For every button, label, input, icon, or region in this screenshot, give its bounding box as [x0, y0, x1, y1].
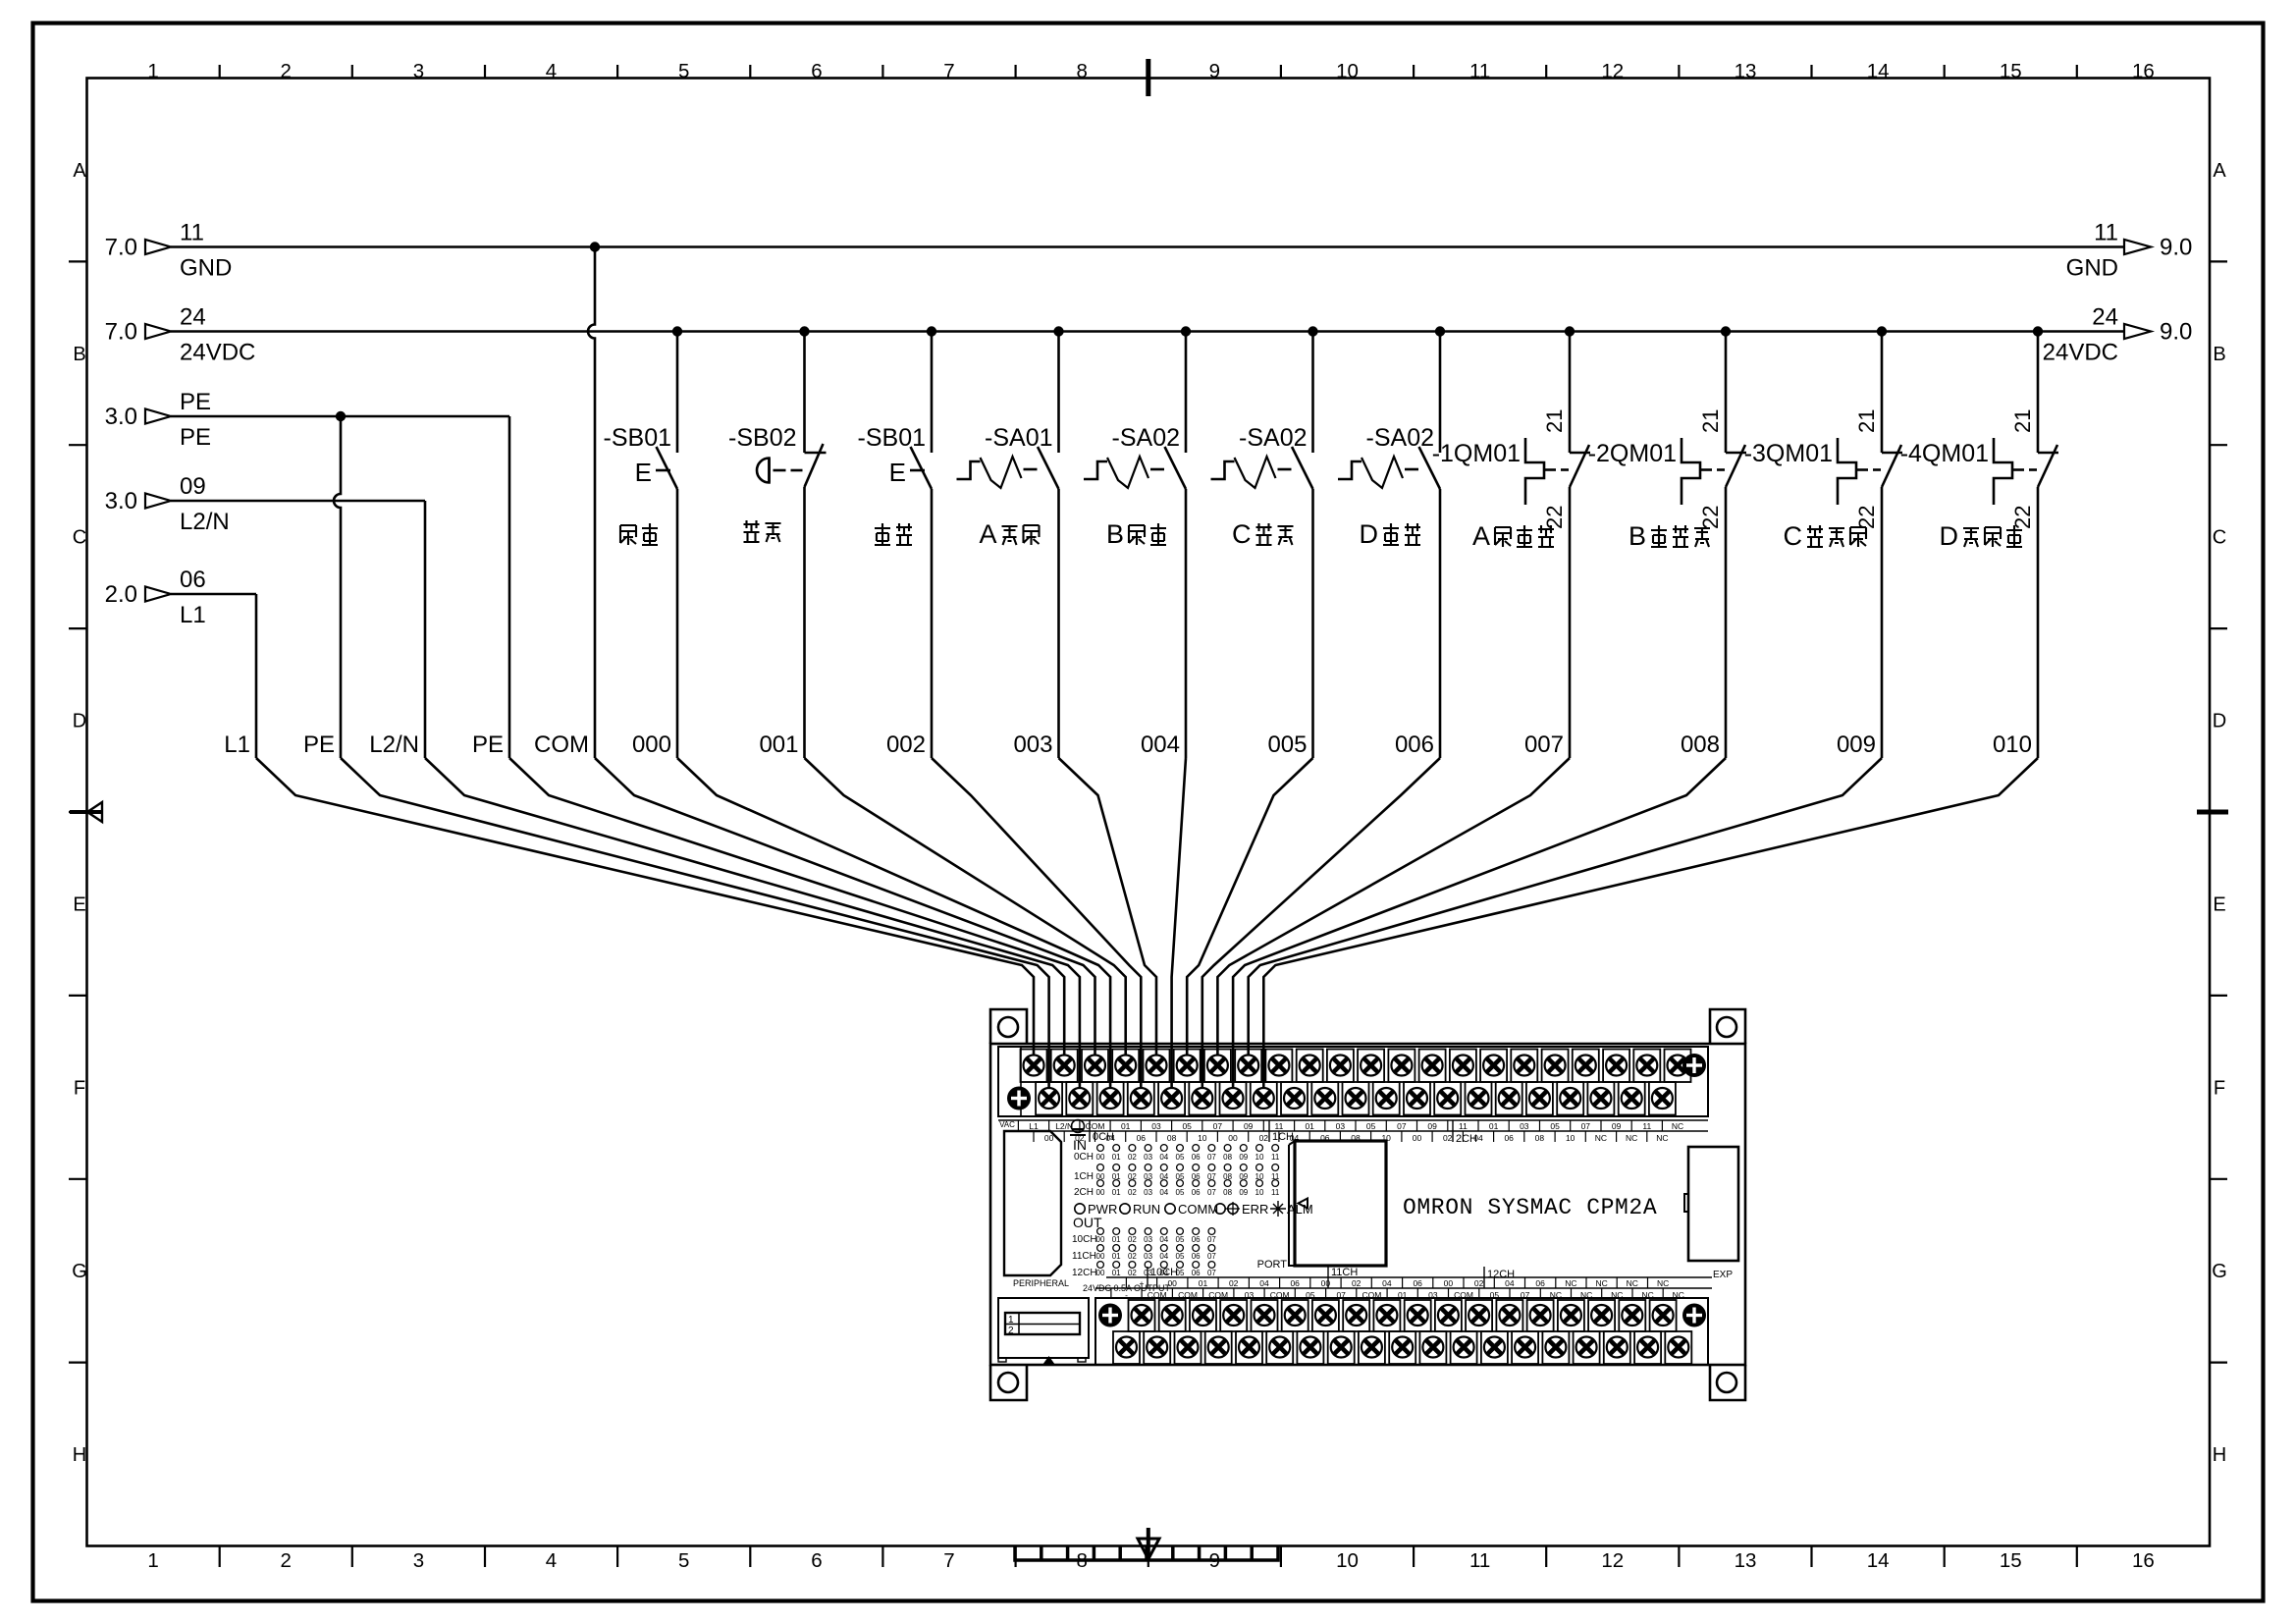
svg-text:11: 11 [1642, 1121, 1651, 1131]
svg-text:09: 09 [1239, 1188, 1248, 1197]
svg-text:00: 00 [1444, 1278, 1454, 1288]
svg-text:B: B [1106, 519, 1124, 549]
svg-text:OUT: OUT [1073, 1215, 1102, 1230]
svg-text:07: 07 [1397, 1121, 1407, 1131]
svg-text:PE: PE [180, 389, 211, 415]
svg-text:00: 00 [1096, 1269, 1105, 1277]
svg-text:11: 11 [1271, 1153, 1280, 1162]
svg-text:10: 10 [1255, 1188, 1264, 1197]
svg-text:11: 11 [1469, 60, 1490, 82]
svg-text:08: 08 [1535, 1133, 1545, 1143]
svg-text:NC: NC [1656, 1133, 1668, 1143]
svg-text:10: 10 [1336, 1549, 1359, 1572]
svg-text:5: 5 [678, 1549, 689, 1572]
svg-text:02: 02 [1128, 1252, 1137, 1261]
svg-text:H: H [2213, 1444, 2226, 1466]
svg-text:12CH: 12CH [1072, 1268, 1097, 1278]
svg-text:21: 21 [1854, 409, 1879, 433]
svg-text:03: 03 [1520, 1121, 1529, 1131]
svg-text:05: 05 [1176, 1188, 1185, 1197]
svg-text:-SB01: -SB01 [604, 424, 671, 452]
svg-text:PE: PE [180, 424, 211, 451]
svg-text:F: F [74, 1077, 85, 1099]
svg-text:10: 10 [1198, 1133, 1207, 1143]
svg-text:06: 06 [180, 567, 206, 593]
svg-text:-SB01: -SB01 [858, 424, 926, 452]
svg-text:02: 02 [1259, 1133, 1269, 1143]
svg-text:00: 00 [1167, 1278, 1177, 1288]
svg-text:04: 04 [1259, 1278, 1269, 1288]
svg-text:-SB02: -SB02 [728, 424, 796, 452]
svg-text:03: 03 [1144, 1188, 1152, 1197]
svg-text:11: 11 [1274, 1121, 1283, 1131]
svg-text:1: 1 [147, 1549, 158, 1572]
svg-text:01: 01 [1112, 1188, 1121, 1197]
svg-text:00: 00 [1096, 1252, 1105, 1261]
svg-text:COM: COM [1086, 1121, 1105, 1131]
svg-text:12: 12 [1601, 60, 1624, 82]
svg-text:PE: PE [303, 731, 335, 758]
svg-text:06: 06 [1504, 1133, 1514, 1143]
svg-text:00: 00 [1096, 1188, 1105, 1197]
svg-text:D: D [1360, 519, 1379, 549]
svg-text:08: 08 [1223, 1188, 1232, 1197]
svg-text:03: 03 [1144, 1235, 1152, 1244]
svg-text:7.0: 7.0 [105, 235, 137, 261]
svg-text:12: 12 [1601, 1549, 1624, 1572]
svg-text:01: 01 [1112, 1252, 1121, 1261]
svg-text:07: 07 [1207, 1252, 1216, 1261]
svg-text:COM: COM [1178, 1290, 1198, 1300]
svg-text:NC: NC [1611, 1290, 1623, 1300]
svg-text:-SA01: -SA01 [985, 424, 1052, 452]
svg-text:E: E [73, 893, 85, 915]
svg-text:010: 010 [1993, 731, 2032, 758]
svg-text:05: 05 [1182, 1121, 1192, 1131]
svg-text:D: D [73, 711, 86, 732]
svg-text:E: E [635, 458, 652, 487]
svg-text:02: 02 [1229, 1278, 1239, 1288]
svg-text:11CH: 11CH [1331, 1267, 1358, 1278]
svg-text:5: 5 [678, 60, 689, 82]
svg-text:E: E [889, 458, 906, 487]
svg-text:VAC: VAC [999, 1120, 1015, 1129]
svg-text:G: G [2212, 1261, 2227, 1282]
svg-text:000: 000 [632, 731, 671, 758]
svg-text:-SA02: -SA02 [1366, 424, 1434, 452]
svg-text:A: A [2213, 160, 2226, 182]
svg-text:06: 06 [1192, 1269, 1201, 1277]
svg-text:RUN: RUN [1133, 1202, 1160, 1217]
svg-text:10CH: 10CH [1150, 1267, 1178, 1278]
svg-text:B: B [1629, 521, 1646, 551]
svg-text:06: 06 [1192, 1252, 1201, 1261]
svg-text:09: 09 [180, 473, 206, 500]
svg-text:NC: NC [1641, 1290, 1653, 1300]
svg-text:07: 07 [1207, 1235, 1216, 1244]
svg-text:B: B [73, 344, 85, 365]
svg-text:05: 05 [1176, 1252, 1185, 1261]
svg-text:GND: GND [180, 255, 232, 282]
svg-text:24: 24 [180, 304, 206, 331]
svg-text:24VDC: 24VDC [180, 340, 255, 366]
svg-text:03: 03 [1144, 1252, 1152, 1261]
svg-text:07: 07 [1207, 1269, 1216, 1277]
svg-text:07: 07 [1521, 1290, 1530, 1300]
svg-text:06: 06 [1137, 1133, 1147, 1143]
svg-text:IN: IN [1073, 1137, 1087, 1153]
svg-text:2CH: 2CH [1074, 1187, 1094, 1198]
svg-text:09: 09 [1244, 1121, 1254, 1131]
svg-text:007: 007 [1524, 731, 1564, 758]
svg-text:9: 9 [1209, 60, 1220, 82]
svg-text:OMRON SYSMAC CPM2A: OMRON SYSMAC CPM2A [1403, 1195, 1657, 1220]
svg-text:02: 02 [1352, 1278, 1362, 1288]
svg-text:COM: COM [1454, 1290, 1473, 1300]
svg-text:NC: NC [1626, 1133, 1637, 1143]
svg-text:0CH: 0CH [1093, 1131, 1114, 1143]
svg-text:02: 02 [1128, 1269, 1137, 1277]
svg-text:00: 00 [1321, 1278, 1331, 1288]
svg-text:21: 21 [1542, 409, 1567, 433]
svg-text:-1QM01: -1QM01 [1432, 440, 1521, 467]
svg-text:12CH: 12CH [1487, 1269, 1515, 1280]
svg-text:7: 7 [943, 60, 954, 82]
svg-text:07: 07 [1207, 1188, 1216, 1197]
svg-text:NC: NC [1565, 1278, 1576, 1288]
svg-text:4: 4 [546, 1549, 557, 1572]
svg-text:06: 06 [1192, 1235, 1201, 1244]
svg-text:NC: NC [1550, 1290, 1562, 1300]
svg-text:11: 11 [1459, 1121, 1468, 1131]
svg-text:22: 22 [1542, 506, 1567, 529]
svg-text:-SA02: -SA02 [1112, 424, 1180, 452]
svg-text:005: 005 [1267, 731, 1307, 758]
svg-text:2: 2 [1008, 1326, 1014, 1336]
svg-text:1: 1 [147, 60, 158, 82]
svg-text:L2/N: L2/N [1055, 1121, 1073, 1131]
svg-text:C: C [2213, 527, 2226, 549]
svg-text:03: 03 [1151, 1121, 1161, 1131]
svg-text:14: 14 [1867, 1549, 1890, 1572]
svg-text:COM: COM [1362, 1290, 1381, 1300]
svg-text:NC: NC [1672, 1121, 1683, 1131]
svg-text:ERR: ERR [1242, 1202, 1268, 1217]
svg-text:04: 04 [1159, 1188, 1168, 1197]
svg-text:8: 8 [1076, 60, 1087, 82]
svg-text:PORT: PORT [1257, 1259, 1288, 1271]
svg-text:09: 09 [1239, 1153, 1248, 1162]
svg-text:2: 2 [280, 60, 291, 82]
svg-text:05: 05 [1176, 1235, 1185, 1244]
svg-text:E: E [2213, 893, 2225, 915]
svg-text:21: 21 [1698, 409, 1723, 433]
svg-text:00: 00 [1228, 1133, 1238, 1143]
svg-text:02: 02 [1474, 1278, 1484, 1288]
svg-text:PERIPHERAL: PERIPHERAL [1013, 1278, 1069, 1288]
svg-text:15: 15 [2000, 60, 2022, 82]
svg-text:01: 01 [1305, 1121, 1314, 1131]
svg-text:COMM: COMM [1178, 1202, 1218, 1217]
svg-text:00: 00 [1096, 1153, 1105, 1162]
svg-text:05: 05 [1490, 1290, 1500, 1300]
svg-text:C: C [73, 527, 86, 549]
svg-text:02: 02 [1128, 1188, 1137, 1197]
svg-text:10: 10 [1255, 1153, 1264, 1162]
svg-text:13: 13 [1735, 1549, 1757, 1572]
svg-text:3: 3 [413, 1549, 424, 1572]
svg-text:24: 24 [2092, 304, 2118, 331]
svg-text:00: 00 [1096, 1235, 1105, 1244]
svg-text:0CH: 0CH [1074, 1152, 1094, 1163]
svg-text:15: 15 [2000, 1549, 2022, 1572]
svg-text:13: 13 [1735, 60, 1757, 82]
svg-text:7: 7 [943, 1549, 954, 1572]
svg-text:03: 03 [1144, 1153, 1152, 1162]
svg-text:01: 01 [1112, 1235, 1121, 1244]
svg-text:6: 6 [811, 60, 822, 82]
svg-text:1CH: 1CH [1074, 1171, 1094, 1182]
svg-text:11CH: 11CH [1072, 1251, 1096, 1262]
svg-text:L1: L1 [224, 731, 250, 758]
svg-text:COM: COM [1148, 1290, 1167, 1300]
svg-text:002: 002 [886, 731, 926, 758]
svg-text:01: 01 [1398, 1290, 1408, 1300]
svg-text:NC: NC [1673, 1290, 1684, 1300]
svg-text:24VDC: 24VDC [2043, 340, 2118, 366]
svg-text:L1: L1 [180, 602, 206, 628]
svg-text:6: 6 [811, 1549, 822, 1572]
svg-text:NC: NC [1595, 1278, 1607, 1288]
svg-text:01: 01 [1199, 1278, 1208, 1288]
svg-text:3: 3 [413, 60, 424, 82]
svg-text:10CH: 10CH [1072, 1234, 1097, 1245]
svg-text:01: 01 [1489, 1121, 1499, 1131]
svg-text:06: 06 [1192, 1188, 1201, 1197]
svg-text:07: 07 [1207, 1153, 1216, 1162]
svg-text:11: 11 [1469, 1549, 1490, 1572]
svg-text:-SA02: -SA02 [1239, 424, 1307, 452]
svg-text:2CH: 2CH [1456, 1133, 1477, 1145]
svg-text:00: 00 [1413, 1133, 1422, 1143]
svg-text:4: 4 [546, 60, 557, 82]
svg-text:7.0: 7.0 [105, 319, 137, 346]
svg-text:3.0: 3.0 [105, 488, 137, 514]
svg-text:10: 10 [1336, 60, 1359, 82]
svg-text:06: 06 [1413, 1278, 1422, 1288]
svg-text:2.0: 2.0 [105, 581, 137, 608]
svg-text:NC: NC [1595, 1133, 1607, 1143]
svg-text:07: 07 [1581, 1121, 1591, 1131]
svg-text:02: 02 [1443, 1133, 1453, 1143]
svg-text:L2/N: L2/N [369, 731, 419, 758]
svg-text:001: 001 [759, 731, 798, 758]
svg-text:2: 2 [280, 1549, 291, 1572]
svg-text:06: 06 [1535, 1278, 1545, 1288]
svg-text:+: + [1140, 1278, 1145, 1288]
svg-text:04: 04 [1159, 1235, 1168, 1244]
svg-text:A: A [73, 160, 86, 182]
svg-text:D: D [1940, 521, 1959, 551]
svg-text:05: 05 [1176, 1153, 1185, 1162]
svg-text:09: 09 [1612, 1121, 1622, 1131]
svg-text:16: 16 [2132, 1549, 2155, 1572]
svg-text:04: 04 [1159, 1252, 1168, 1261]
svg-text:01: 01 [1112, 1269, 1121, 1277]
svg-text:NC: NC [1627, 1278, 1638, 1288]
svg-text:006: 006 [1395, 731, 1434, 758]
svg-text:21: 21 [2010, 409, 2035, 433]
svg-text:G: G [72, 1261, 87, 1282]
svg-text:08: 08 [1167, 1133, 1177, 1143]
svg-text:B: B [2213, 344, 2225, 365]
svg-text:COM: COM [1208, 1290, 1228, 1300]
svg-text:03: 03 [1428, 1290, 1438, 1300]
svg-text:F: F [2214, 1077, 2225, 1099]
svg-text:06: 06 [1290, 1278, 1300, 1288]
svg-text:02: 02 [1128, 1235, 1137, 1244]
svg-text:05: 05 [1550, 1121, 1560, 1131]
svg-text:04: 04 [1159, 1153, 1168, 1162]
svg-text:07: 07 [1213, 1121, 1223, 1131]
svg-text:NC: NC [1580, 1290, 1592, 1300]
svg-text:03: 03 [1336, 1121, 1346, 1131]
svg-text:L2/N: L2/N [180, 509, 230, 535]
svg-text:-: - [1125, 1290, 1128, 1300]
svg-text:11: 11 [2094, 220, 2118, 246]
svg-text:02: 02 [1128, 1153, 1137, 1162]
svg-text:L1: L1 [1029, 1121, 1039, 1131]
svg-text:10: 10 [1566, 1133, 1575, 1143]
svg-text:22: 22 [1698, 506, 1723, 529]
svg-text:EXP: EXP [1713, 1270, 1733, 1280]
svg-text:11: 11 [180, 220, 204, 246]
svg-text:03: 03 [1245, 1290, 1255, 1300]
svg-text:D: D [2213, 711, 2226, 732]
svg-text:-3QM01: -3QM01 [1744, 440, 1833, 467]
svg-text:GND: GND [2066, 255, 2118, 282]
svg-text:14: 14 [1867, 60, 1890, 82]
svg-text:06: 06 [1192, 1153, 1201, 1162]
svg-text:3.0: 3.0 [105, 404, 137, 430]
svg-text:22: 22 [1854, 506, 1879, 529]
svg-text:09: 09 [1427, 1121, 1437, 1131]
svg-text:NC: NC [1657, 1278, 1669, 1288]
svg-text:003: 003 [1013, 731, 1052, 758]
svg-text:004: 004 [1141, 731, 1180, 758]
svg-text:05: 05 [1366, 1121, 1376, 1131]
svg-text:08: 08 [1223, 1153, 1232, 1162]
svg-text:9.0: 9.0 [2160, 319, 2192, 346]
svg-text:C: C [1232, 519, 1252, 549]
svg-text:008: 008 [1681, 731, 1720, 758]
svg-text:-2QM01: -2QM01 [1588, 440, 1677, 467]
svg-text:05: 05 [1306, 1290, 1315, 1300]
svg-text:9.0: 9.0 [2160, 235, 2192, 261]
svg-text:009: 009 [1837, 731, 1876, 758]
svg-text:11: 11 [1271, 1188, 1280, 1197]
svg-text:04: 04 [1382, 1278, 1392, 1288]
svg-text:A: A [1472, 521, 1490, 551]
svg-text:01: 01 [1121, 1121, 1131, 1131]
svg-text:PE: PE [472, 731, 504, 758]
svg-text:1: 1 [1008, 1315, 1014, 1326]
svg-text:16: 16 [2132, 60, 2155, 82]
svg-text:C: C [1784, 521, 1803, 551]
svg-text:1CH: 1CH [1272, 1131, 1294, 1143]
svg-text:H: H [73, 1444, 86, 1466]
svg-text:A: A [979, 519, 996, 549]
svg-text:COM: COM [534, 731, 589, 758]
svg-text:COM: COM [1270, 1290, 1290, 1300]
svg-text:-4QM01: -4QM01 [1900, 440, 1989, 467]
svg-text:07: 07 [1336, 1290, 1346, 1300]
svg-text:01: 01 [1112, 1153, 1121, 1162]
